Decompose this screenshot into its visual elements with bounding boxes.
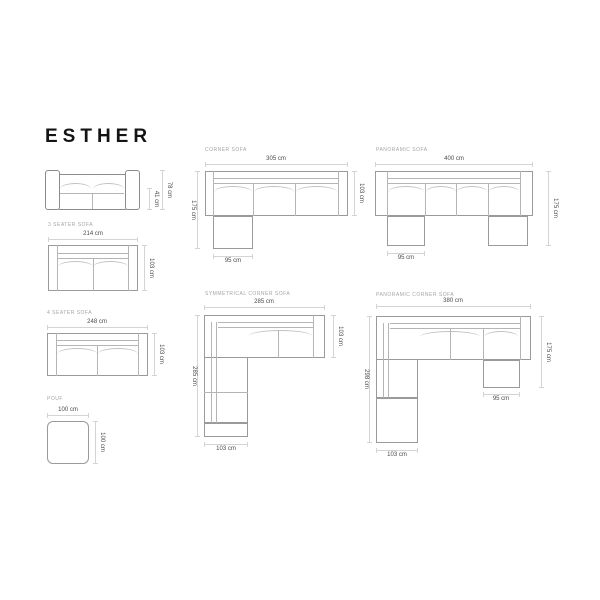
collection-title: ESTHER <box>45 126 152 148</box>
panoramic-corner-diagram: PANORAMIC CORNER SOFA 380 cm 175 cm 95 c… <box>360 286 560 464</box>
depth-total-value: 175 cm <box>551 198 558 218</box>
arm-line <box>128 245 129 291</box>
backrest-line <box>213 178 338 179</box>
arm-line <box>313 315 314 358</box>
backrest-line-vertical <box>216 322 217 423</box>
arm-line <box>520 316 521 360</box>
depth-value: 100 cm <box>98 432 105 452</box>
chaise-outline <box>213 216 253 249</box>
dimension-line-seat-height <box>149 188 150 210</box>
sofa-right-arm <box>125 170 140 210</box>
dimension-line-depth <box>333 315 334 358</box>
cushion-curve <box>58 261 93 267</box>
cushion-curve <box>249 330 312 336</box>
symmetrical-corner-diagram: SYMMETRICAL CORNER SOFA 285 cm 103 cm 28… <box>190 286 355 461</box>
width-value: 248 cm <box>87 319 107 326</box>
depth-total-value: 285 cm <box>190 366 197 386</box>
cushion-curve <box>296 186 337 192</box>
end-seat-outline <box>376 398 418 443</box>
chaise-width-value: 95 cm <box>493 396 509 403</box>
backrest-line-vertical <box>388 323 389 398</box>
seat-divider <box>253 183 254 216</box>
depth-value: 103 cm <box>147 258 154 278</box>
dimension-line-end <box>376 450 418 451</box>
cushion-curve <box>98 348 138 354</box>
dimension-line-width <box>204 307 325 308</box>
cushion-curve <box>93 183 124 189</box>
section-label: POUF <box>47 396 63 402</box>
section-label: SYMMETRICAL CORNER SOFA <box>205 291 290 297</box>
dimension-line-depth-total <box>197 315 198 437</box>
dimension-line-width <box>47 327 148 328</box>
chaise-outline-right <box>483 360 520 388</box>
depth-value: 103 cm <box>157 344 164 364</box>
spec-sheet-canvas: { "title": "ESTHER", "sections": { "fron… <box>0 0 600 600</box>
backrest-line <box>56 340 138 341</box>
seat-divider <box>278 330 279 358</box>
backrest-line <box>390 328 520 329</box>
backrest-line <box>218 327 313 328</box>
seat-divider <box>488 183 489 216</box>
dimension-line-depth <box>95 421 96 464</box>
front-view-sofa-diagram: 41 cm 78 cm <box>45 166 175 218</box>
cushion-curve <box>426 186 456 192</box>
four-seater-diagram: 4 SEATER SOFA 248 cm 103 cm <box>47 308 165 382</box>
dimension-line-right-depth <box>541 316 542 388</box>
cushion-curve <box>93 261 128 267</box>
width-value: 400 cm <box>444 156 464 163</box>
depth-total-value: 175 cm <box>189 200 196 220</box>
arm-line <box>138 333 139 376</box>
section-label: CORNER SOFA <box>205 147 247 153</box>
backrest-line-vertical <box>383 323 384 398</box>
pouf-outline <box>47 421 89 464</box>
depth-value: 103 cm <box>357 183 364 203</box>
cushion-curve <box>388 186 424 192</box>
cushion-curve <box>484 331 518 337</box>
backrest-line <box>218 322 313 323</box>
chaise-width-value: 95 cm <box>398 255 414 262</box>
panoramic-sofa-diagram: PANORAMIC SOFA 400 cm 95 cm 175 cm <box>368 143 560 271</box>
seat-divider <box>425 183 426 216</box>
backrest-line <box>57 253 128 254</box>
corner-sofa-diagram: CORNER SOFA 305 cm 95 cm 175 cm 103 cm <box>188 143 366 271</box>
dimension-line-total-height <box>162 170 163 210</box>
backrest-line <box>387 178 520 179</box>
seat-divider <box>97 345 98 376</box>
section-label: 4 SEATER SOFA <box>47 310 92 316</box>
backrest-line-vertical <box>211 322 212 423</box>
dimension-line-depth-total <box>197 171 198 249</box>
dimension-line-chaise <box>213 256 253 257</box>
seat-divider <box>92 193 93 209</box>
cushion-curve <box>60 183 91 189</box>
seat-divider <box>93 258 94 291</box>
seat-divider-horizontal <box>204 392 248 393</box>
arm-line <box>520 171 521 216</box>
arm-line <box>57 245 58 291</box>
dimension-line-depth-total <box>369 316 370 443</box>
dimension-line-width <box>375 164 533 165</box>
end-width-value: 103 cm <box>387 452 407 459</box>
seat-divider <box>456 183 457 216</box>
width-value: 214 cm <box>83 231 103 238</box>
seat-divider <box>295 183 296 216</box>
total-height-value: 78 cm <box>165 182 172 198</box>
seat-height-value: 41 cm <box>152 191 159 207</box>
backrest-line <box>387 183 520 184</box>
dimension-line-depth <box>154 333 155 376</box>
backrest-line <box>213 183 338 184</box>
arm-line <box>338 171 339 216</box>
right-depth-value: 175 cm <box>544 342 551 362</box>
chaise-outline-left <box>387 216 425 246</box>
width-value: 100 cm <box>58 407 78 414</box>
width-value: 380 cm <box>443 298 463 305</box>
end-seat-outline <box>204 423 248 437</box>
dimension-line-depth-total <box>548 171 549 246</box>
cushion-curve <box>457 186 487 192</box>
dimension-line-width <box>376 306 531 307</box>
pouf-diagram: POUF 100 cm 100 cm <box>47 394 109 472</box>
cushion-curve <box>489 186 519 192</box>
section-label: PANORAMIC SOFA <box>376 147 428 153</box>
dimension-line-depth <box>354 171 355 216</box>
dimension-line-chaise <box>483 394 520 395</box>
end-width-value: 103 cm <box>216 446 236 453</box>
dimension-line-depth <box>144 245 145 291</box>
dimension-line-chaise <box>387 253 425 254</box>
cushion-curve <box>214 186 252 192</box>
cushion-curve <box>254 186 294 192</box>
sofa-left-arm <box>45 170 60 210</box>
section-label: 3 SEATER SOFA <box>48 222 93 228</box>
dimension-line-width <box>48 239 138 240</box>
chaise-width-value: 95 cm <box>225 258 241 265</box>
backrest-line <box>390 323 520 324</box>
depth-value: 103 cm <box>336 326 343 346</box>
width-value: 305 cm <box>266 156 286 163</box>
dimension-line-width <box>47 415 89 416</box>
cushion-curve <box>57 348 97 354</box>
seat-divider <box>483 328 484 360</box>
seat-divider <box>450 328 451 360</box>
width-value: 285 cm <box>254 299 274 306</box>
depth-total-value: 298 cm <box>362 369 369 389</box>
dimension-line-end <box>204 444 248 445</box>
dimension-line-width <box>205 164 348 165</box>
three-seater-diagram: 3 SEATER SOFA 214 cm 103 cm <box>48 222 163 294</box>
chaise-outline-right <box>488 216 528 246</box>
